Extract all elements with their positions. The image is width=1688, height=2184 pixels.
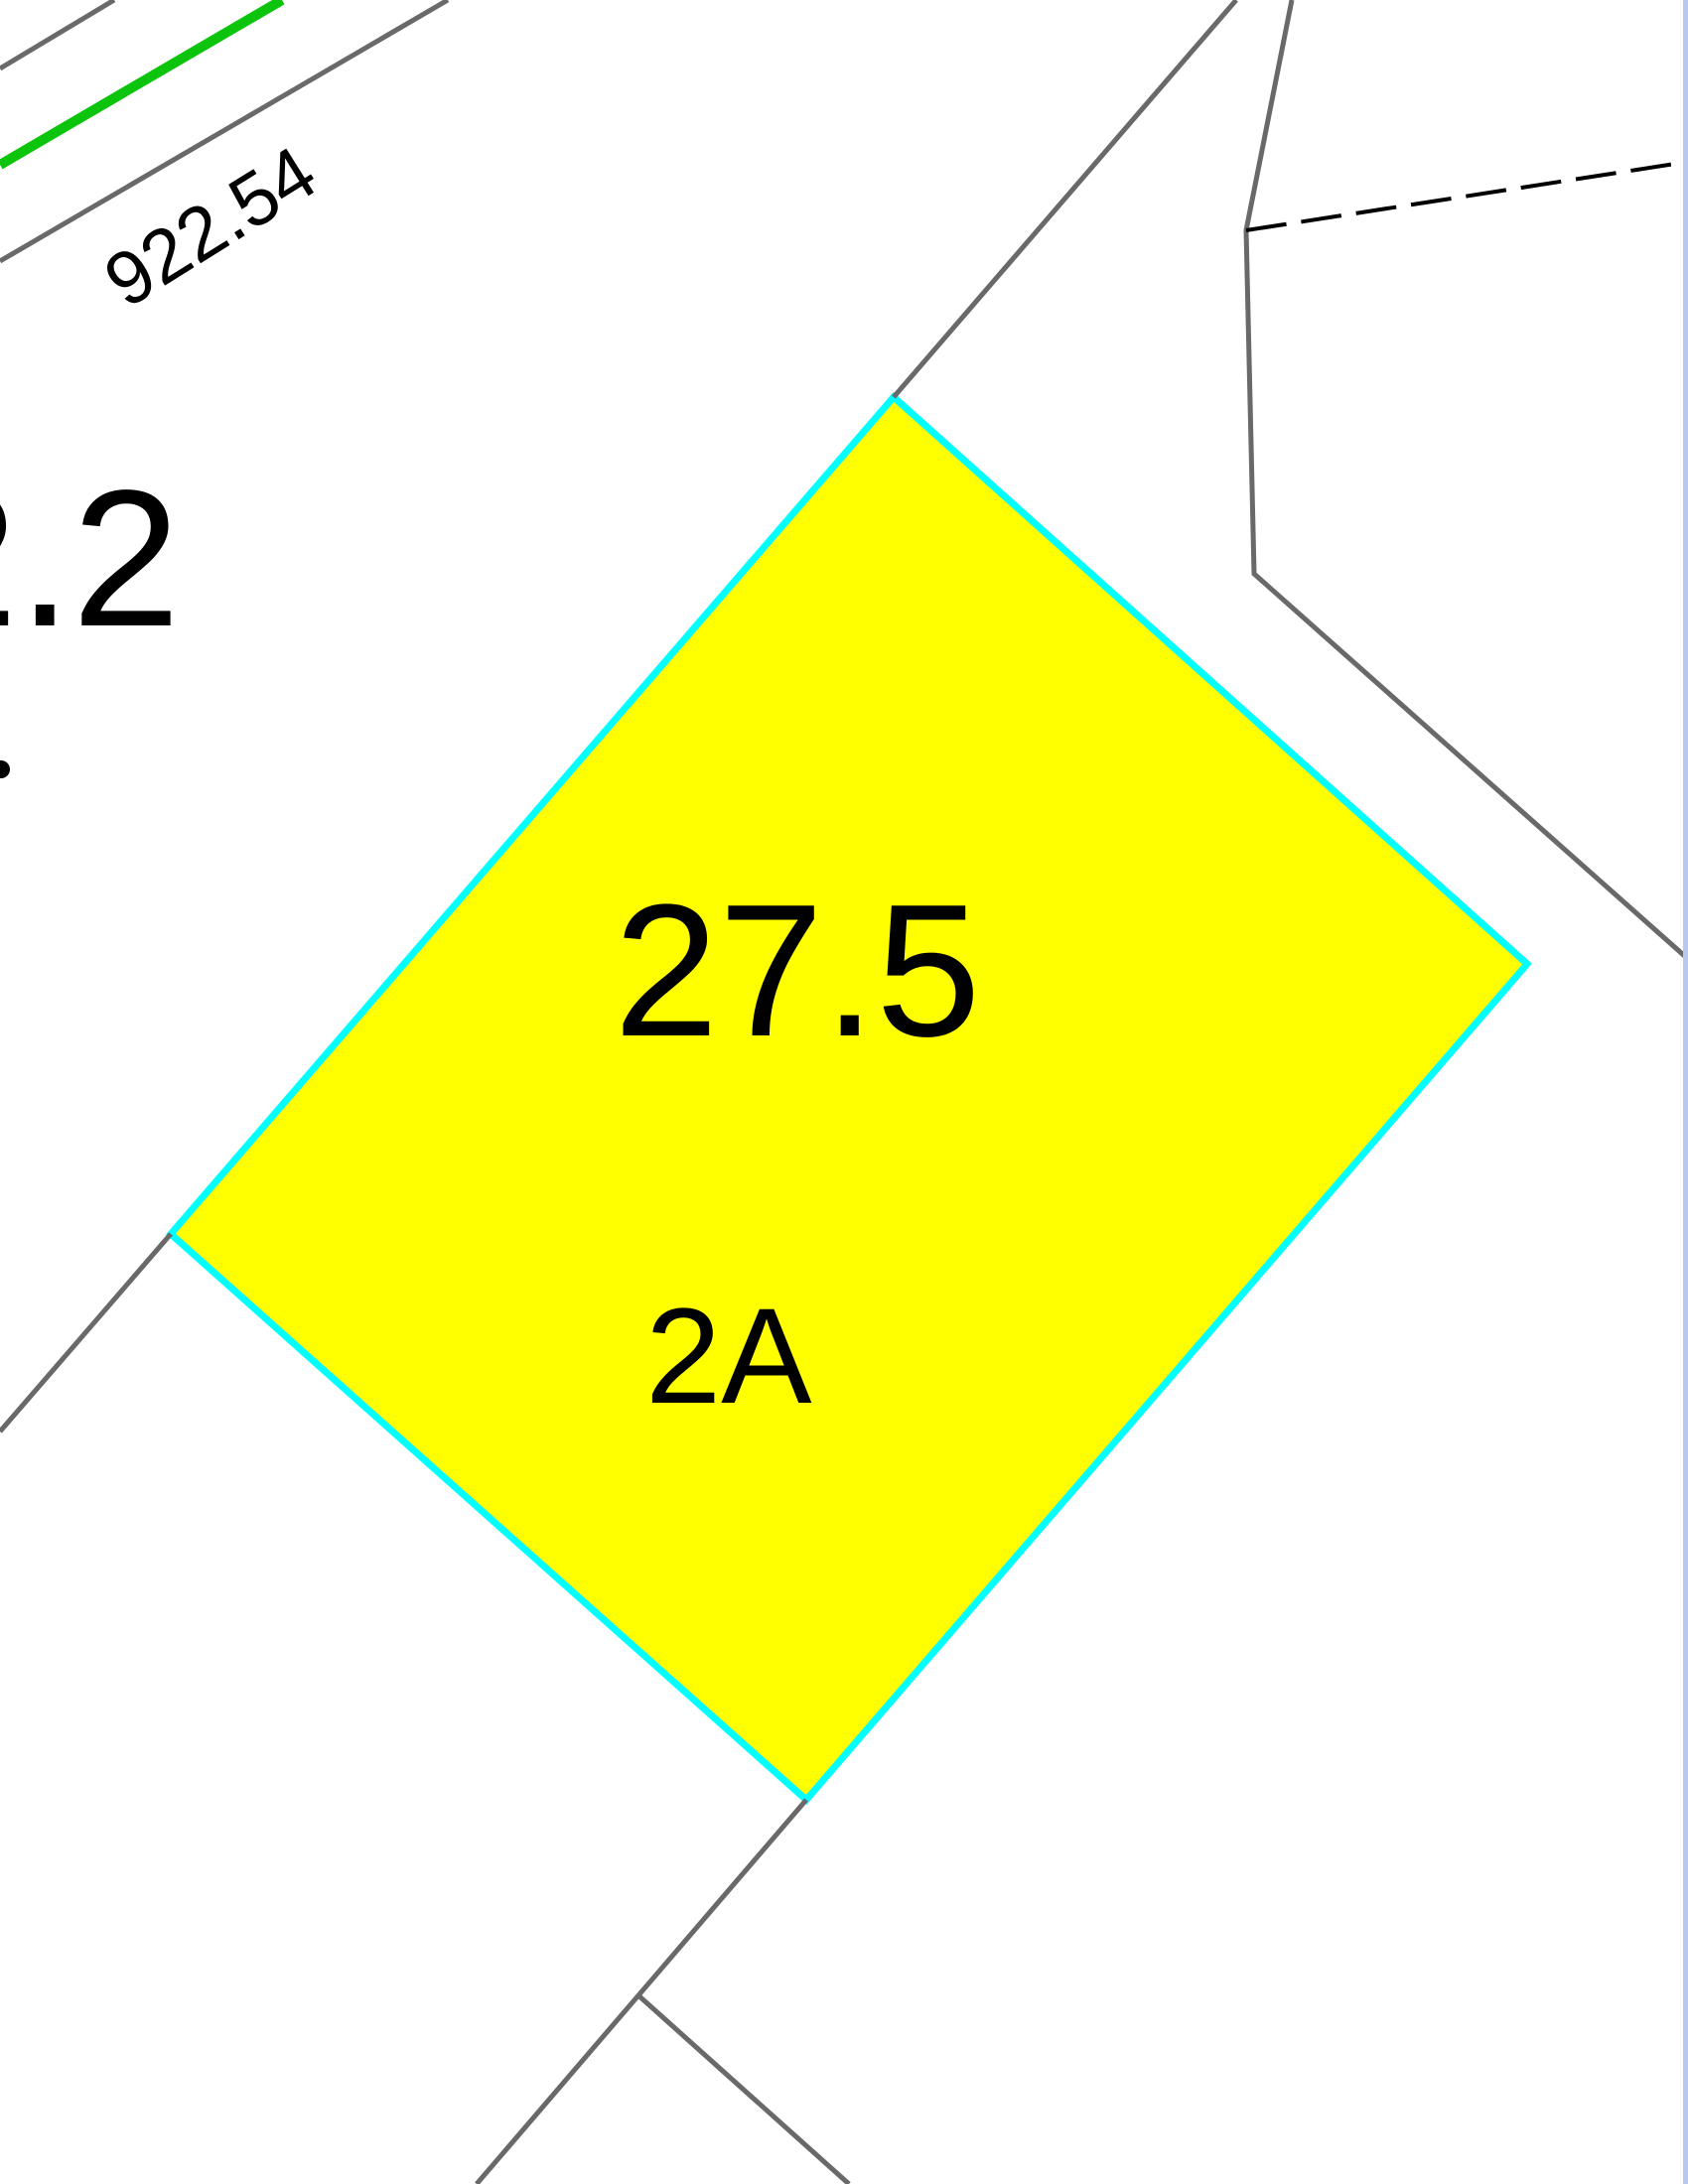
boundary-extension-south — [477, 1800, 806, 2184]
boundary-branch-southeast — [639, 1996, 849, 2184]
dashed-boundary-line — [1246, 162, 1688, 230]
nw-green-highlight-line — [0, 0, 282, 165]
parcel-area-label: 27.5 — [614, 866, 981, 1076]
parcel-polygon[interactable] — [171, 397, 1527, 1800]
boundary-distance-label: 922.54 — [90, 130, 331, 324]
parcel-map-view: 27.5 2A 922.54 2.2 — [0, 0, 1688, 2184]
boundary-extension-north — [894, 0, 1236, 397]
boundary-extension-west — [0, 1234, 171, 1432]
right-window-edge — [1683, 0, 1688, 2184]
nw-boundary-line-upper — [0, 0, 114, 68]
parcel-map-canvas: 27.5 2A 922.54 2.2 — [0, 0, 1688, 2184]
parcel-lot-label: 2A — [645, 1281, 812, 1433]
cutoff-text-dot — [0, 760, 10, 778]
adjacent-parcel-label: 2.2 — [0, 450, 180, 667]
